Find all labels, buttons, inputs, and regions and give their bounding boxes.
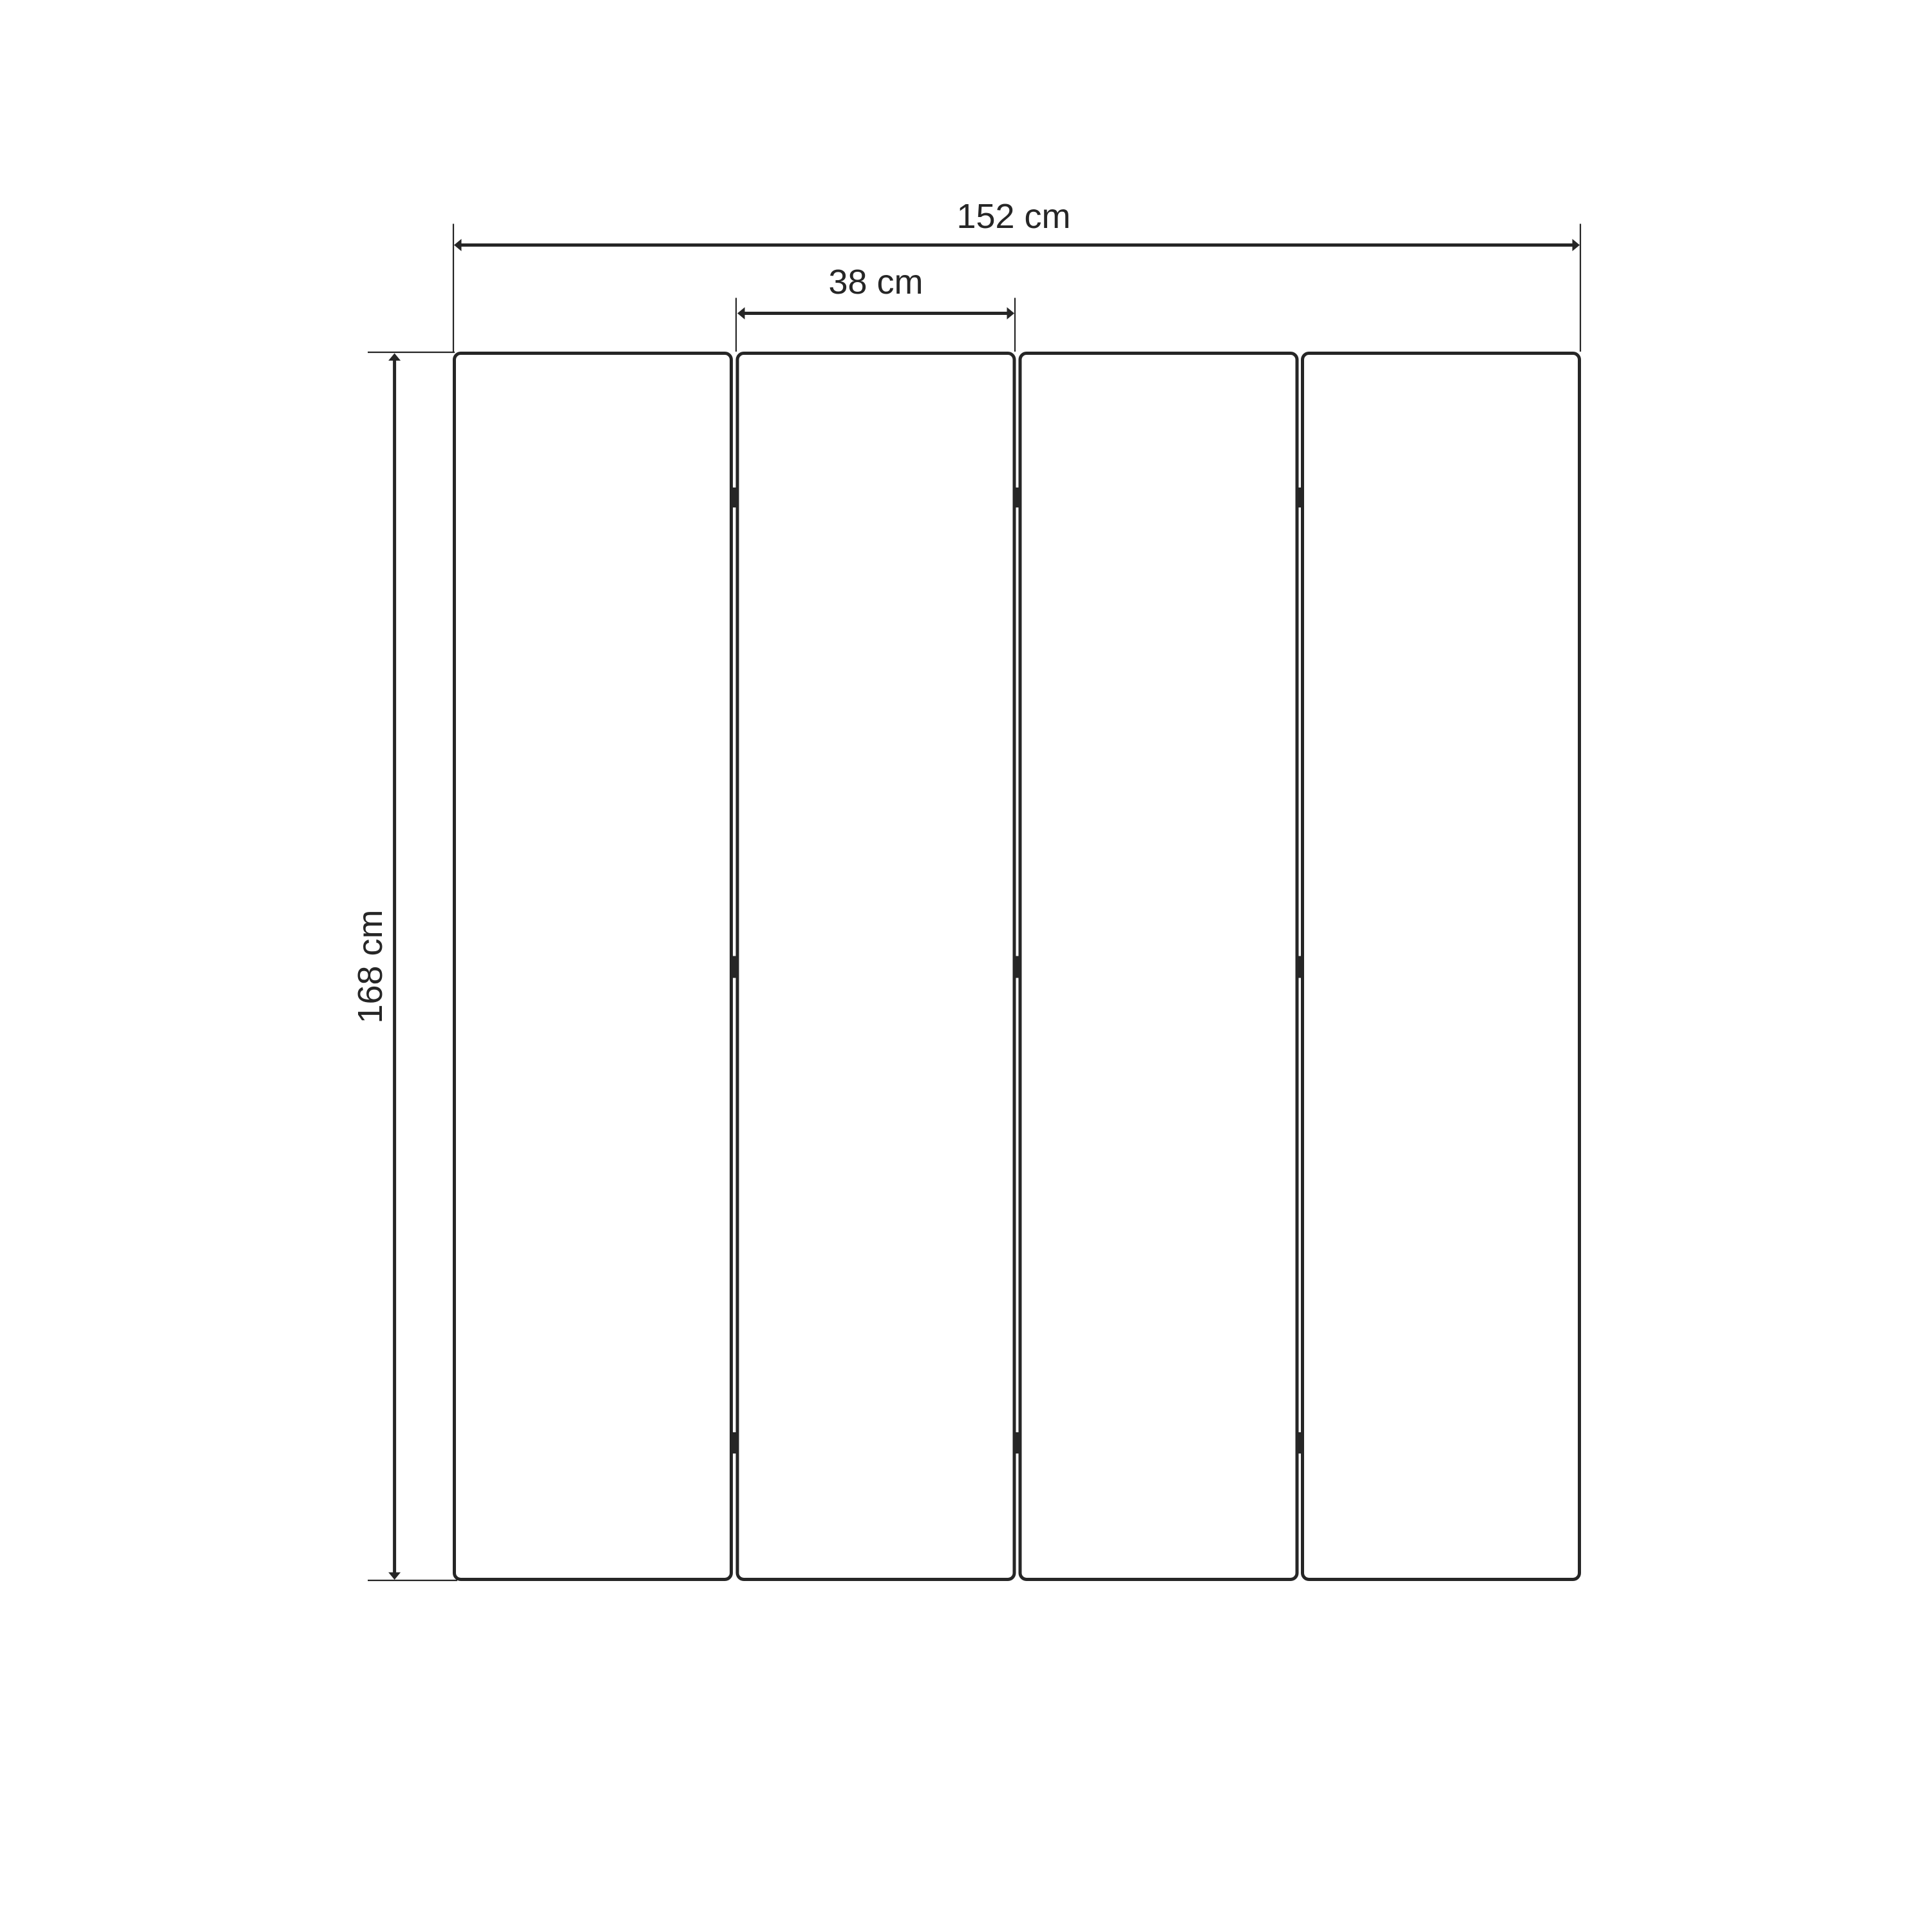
svg-text:168 cm: 168 cm <box>351 909 390 1023</box>
svg-text:152 cm: 152 cm <box>956 197 1070 236</box>
svg-text:38 cm: 38 cm <box>828 263 923 301</box>
